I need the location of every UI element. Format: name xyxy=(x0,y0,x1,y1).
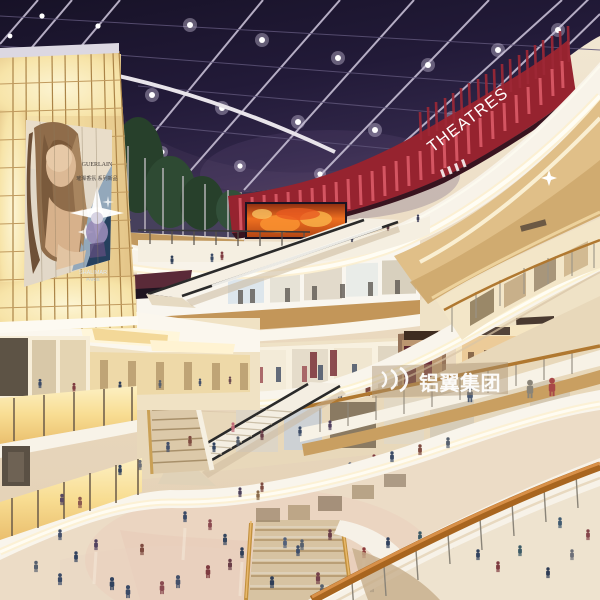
svg-text:铝翼集团: 铝翼集团 xyxy=(419,371,501,395)
svg-text:PARIS: PARIS xyxy=(86,277,99,282)
svg-text:GUERLAIN: GUERLAIN xyxy=(82,162,113,168)
svg-text:SHALIMAR: SHALIMAR xyxy=(79,270,107,276)
